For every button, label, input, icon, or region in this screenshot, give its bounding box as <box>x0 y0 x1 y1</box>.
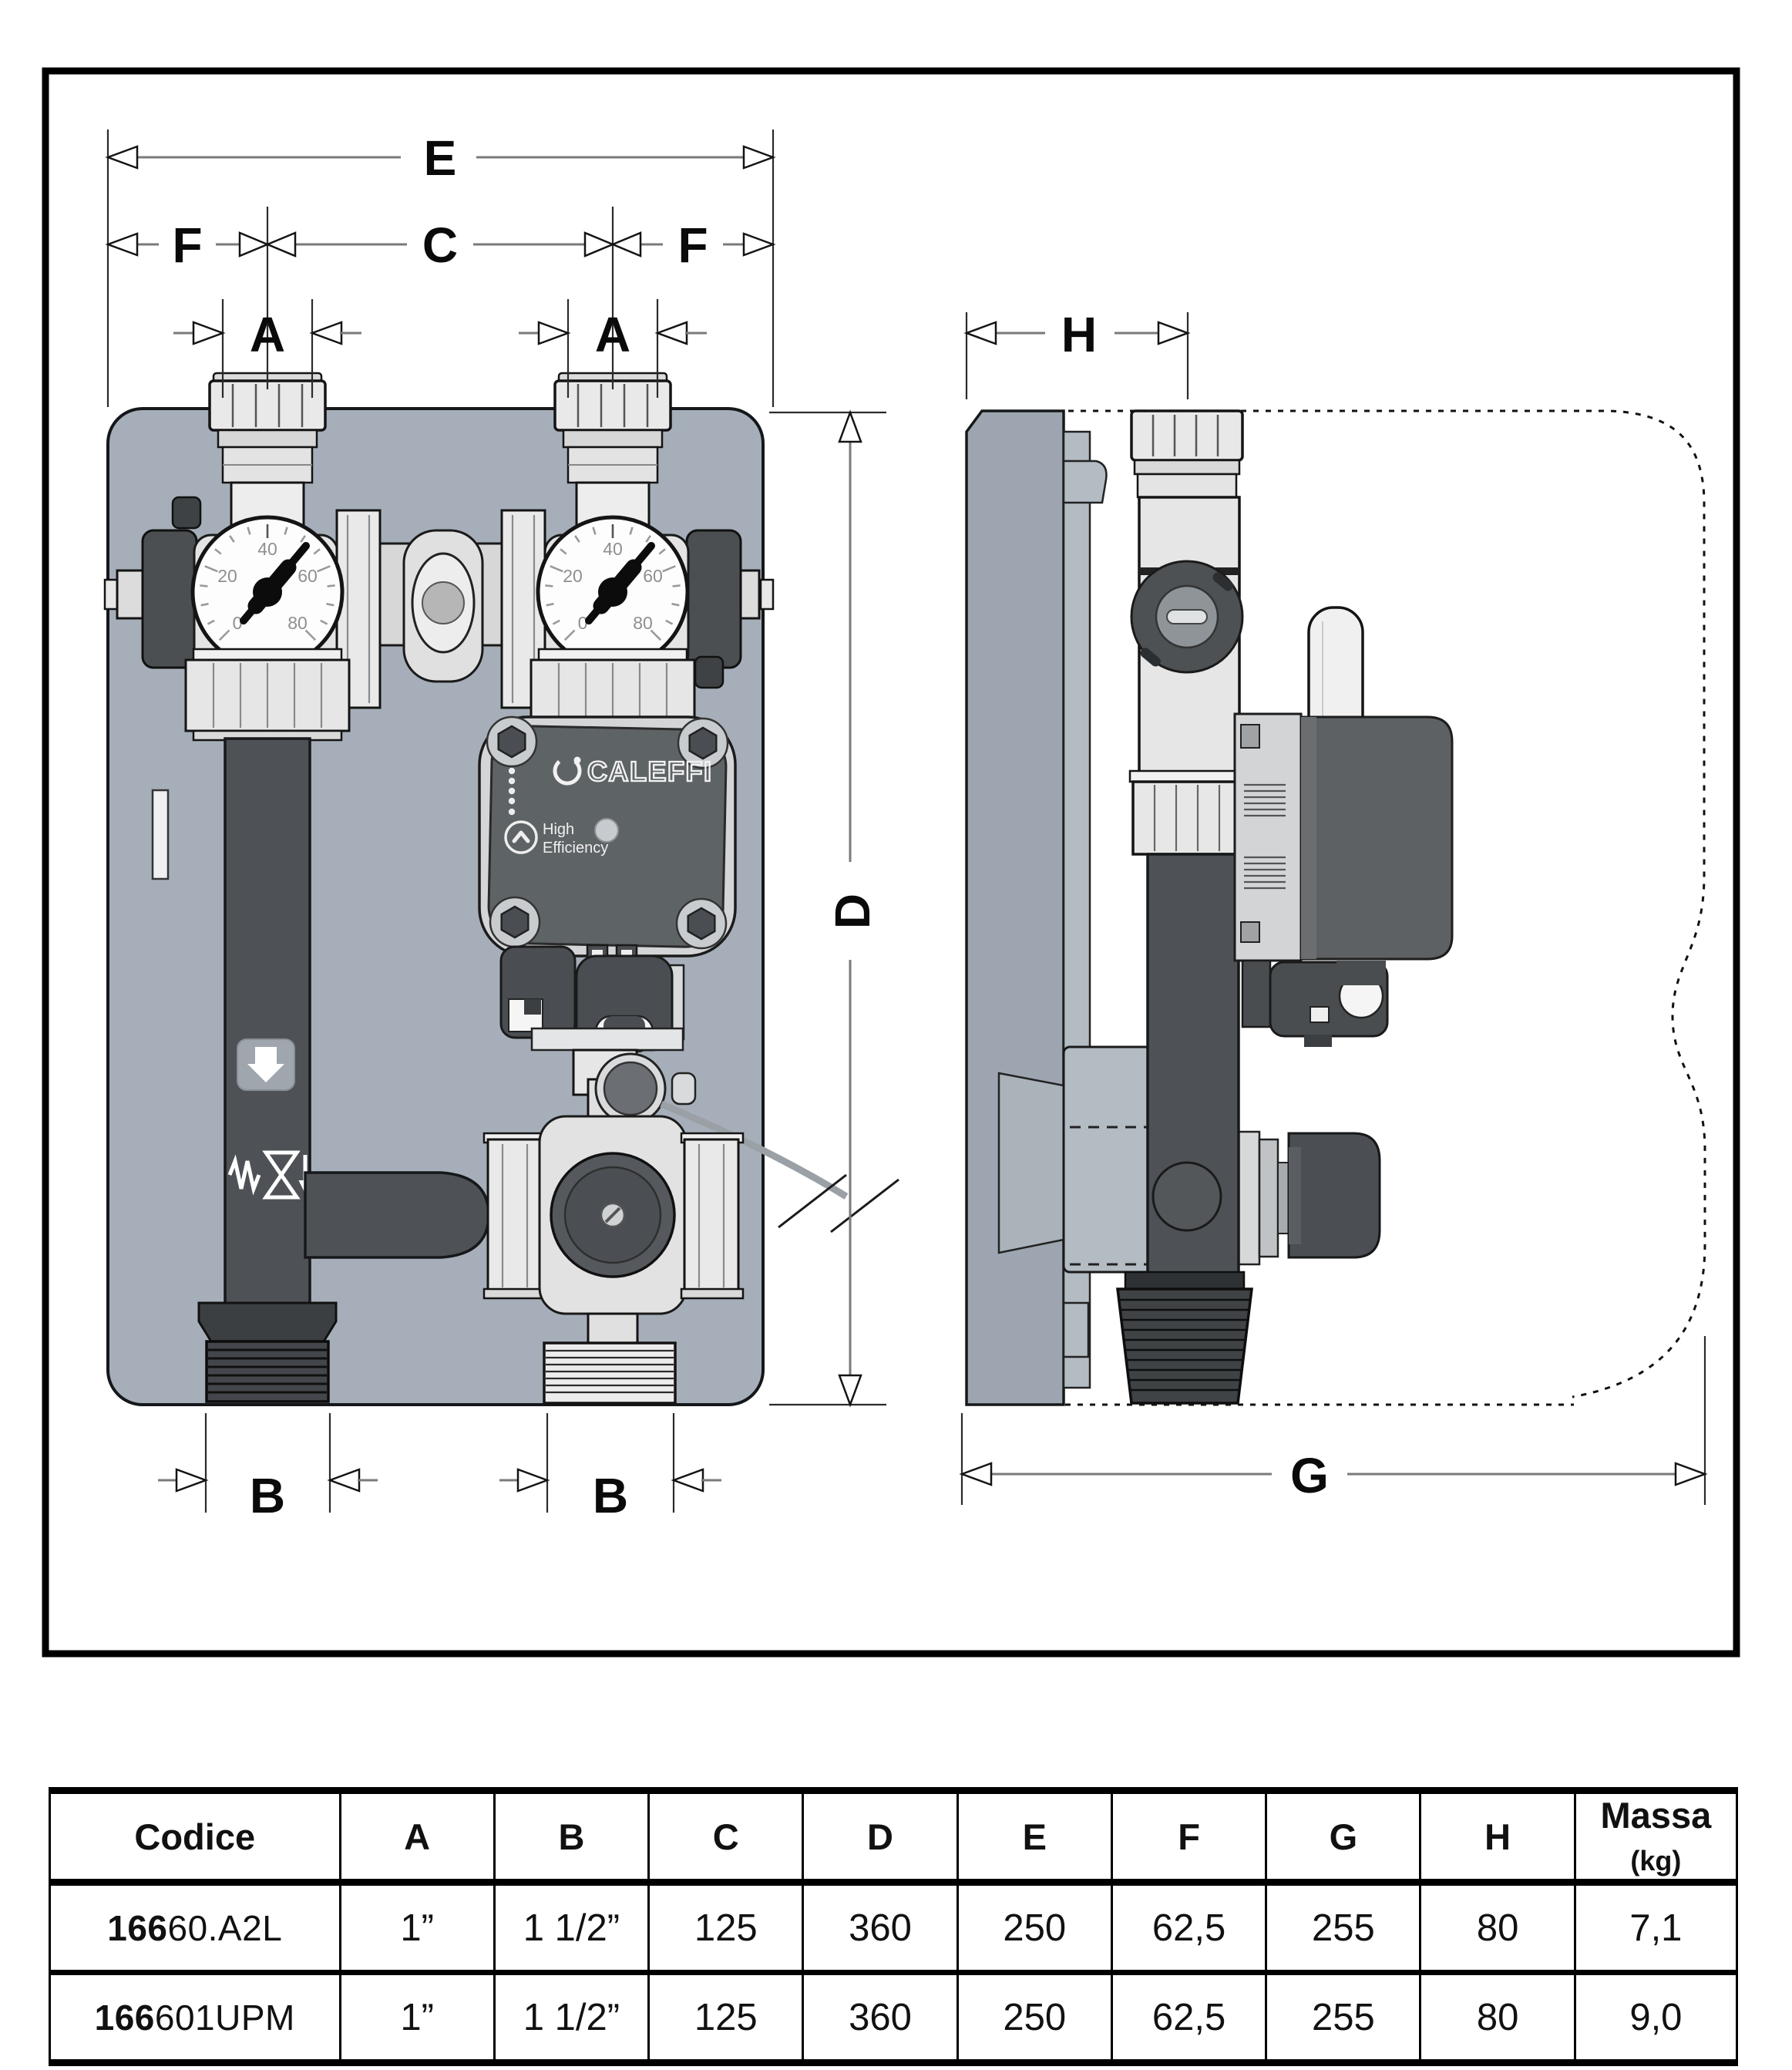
header-H: H <box>1420 1791 1575 1883</box>
pump-electrical-connectors <box>501 945 684 1052</box>
product-code: 166601UPM <box>50 1973 341 2063</box>
header-E: E <box>957 1791 1111 1883</box>
flow-direction-icon <box>237 1039 294 1090</box>
table-cell: 125 <box>649 1883 803 1973</box>
table-cell: 62,5 <box>1111 1973 1266 2063</box>
table-cell: 250 <box>957 1883 1111 1973</box>
svg-text:A: A <box>595 307 630 362</box>
header-A: A <box>340 1791 494 1883</box>
header-F: F <box>1111 1791 1266 1883</box>
pump-brand-label: CALEFFI <box>587 756 712 787</box>
header-massa: Massa (kg) <box>1575 1791 1737 1883</box>
svg-text:A: A <box>250 307 285 362</box>
dimensions-table: Codice A B C D E F G H Massa (kg) 16660.… <box>49 1787 1738 2066</box>
svg-text:C: C <box>422 217 458 273</box>
pump-badge-line2: Efficiency <box>543 840 608 857</box>
svg-text:E: E <box>424 130 457 186</box>
table-cell: 80 <box>1420 1883 1575 1973</box>
supply-bottom-thread <box>199 1303 336 1402</box>
bottom-thread-side <box>1118 1272 1252 1403</box>
supply-riser-pipe <box>225 739 311 1306</box>
return-gauge <box>538 517 688 667</box>
header-G: G <box>1266 1791 1420 1883</box>
panel-slot <box>153 790 168 879</box>
svg-text:F: F <box>172 217 202 273</box>
header-D: D <box>803 1791 957 1883</box>
technical-drawing: 0 20 40 60 80 <box>0 0 1792 1750</box>
svg-text:B: B <box>593 1468 628 1523</box>
svg-text:G: G <box>1290 1448 1329 1503</box>
page: 0 20 40 60 80 <box>0 0 1792 2070</box>
table-cell: 80 <box>1420 1973 1575 2063</box>
table-cell: 360 <box>803 1973 957 2063</box>
svg-text:H: H <box>1061 307 1097 362</box>
table-cell: 250 <box>957 1973 1111 2063</box>
table-cell: 125 <box>649 1973 803 2063</box>
table-cell: 1” <box>340 1883 494 1973</box>
table-header-row: Codice A B C D E F G H Massa (kg) <box>50 1791 1737 1883</box>
table-cell: 1 1/2” <box>494 1973 648 2063</box>
pump-setting-button <box>595 819 618 842</box>
table-cell: 360 <box>803 1883 957 1973</box>
table-cell: 255 <box>1266 1883 1420 1973</box>
bottom-connecting-pipe <box>305 1173 489 1257</box>
table-cell: 1 1/2” <box>494 1883 648 1973</box>
svg-text:B: B <box>250 1468 285 1523</box>
supply-gauge <box>193 517 342 667</box>
table-cell: 62,5 <box>1111 1883 1266 1973</box>
table-cell: 1” <box>340 1973 494 2063</box>
wall-plate <box>967 411 1064 1405</box>
pump-badge-line1: High <box>543 821 574 838</box>
pump-motor-side <box>1301 717 1452 959</box>
thermostatic-knob-side <box>1289 1133 1380 1257</box>
table-cell: 9,0 <box>1575 1973 1737 2063</box>
product-code: 16660.A2L <box>50 1883 341 1973</box>
valve-handle <box>687 530 741 668</box>
header-codice: Codice <box>50 1791 341 1883</box>
table-row: 16660.A2L 1” 1 1/2” 125 360 250 62,5 255… <box>50 1883 1737 1973</box>
header-C: C <box>649 1791 803 1883</box>
svg-text:F: F <box>677 217 708 273</box>
table-row: 166601UPM 1” 1 1/2” 125 360 250 62,5 255… <box>50 1973 1737 2063</box>
table-cell: 7,1 <box>1575 1883 1737 1973</box>
svg-text:D: D <box>825 894 880 929</box>
table-cell: 255 <box>1266 1973 1420 2063</box>
header-B: B <box>494 1791 648 1883</box>
valve-handle <box>143 530 197 668</box>
bypass-bridge <box>337 510 545 708</box>
